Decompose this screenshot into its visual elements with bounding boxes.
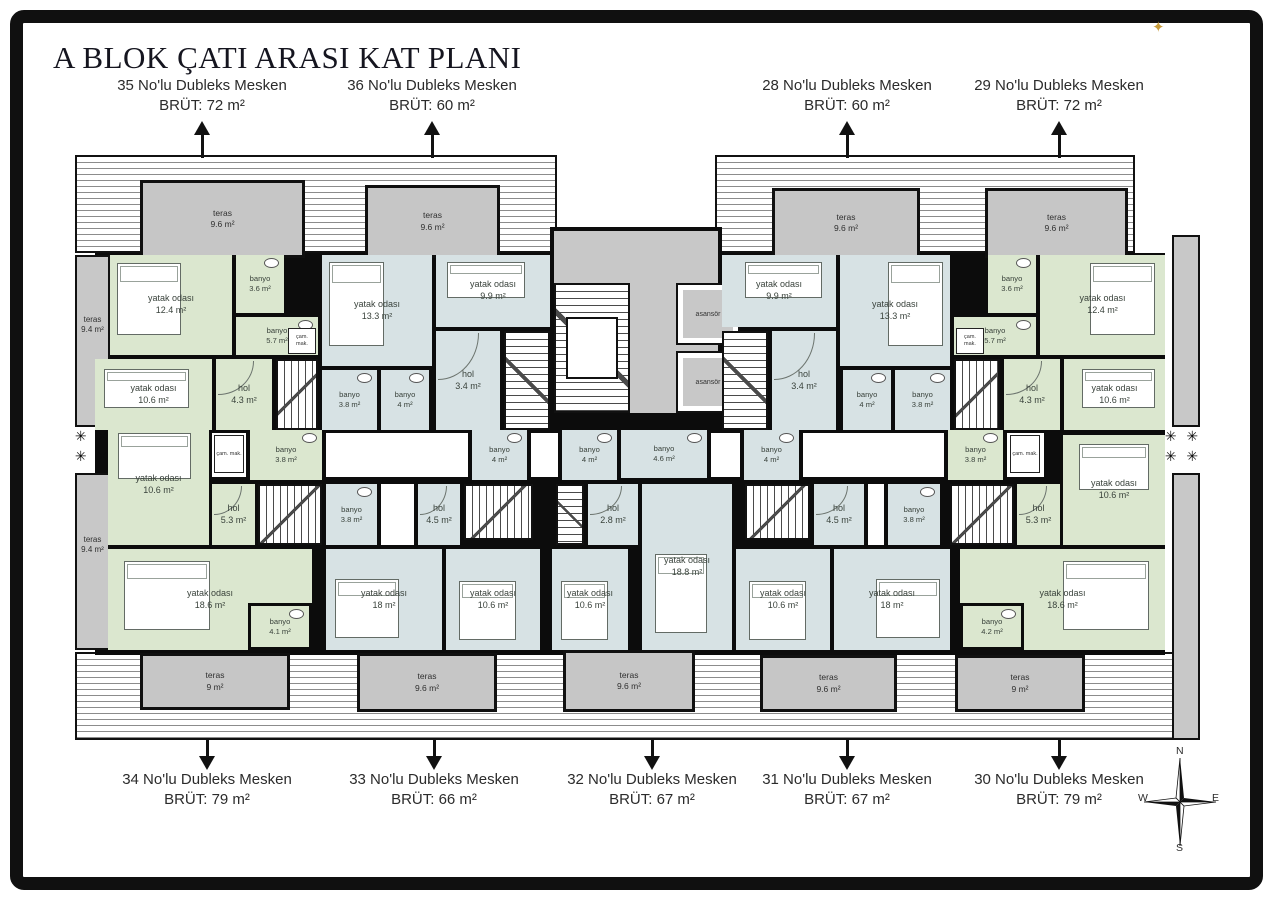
arrow-up-icon xyxy=(839,121,855,135)
room-area: 4 m² xyxy=(582,455,597,465)
unit-callout-36: 36 No'lu Dubleks Mesken BRÜT: 60 m² xyxy=(320,76,544,158)
room-name: yatak odası xyxy=(1079,293,1125,305)
room-area: 3.8 m² xyxy=(275,455,297,465)
terrace: teras9 m² xyxy=(955,655,1085,712)
arrow-down-icon xyxy=(839,756,855,770)
room-area: 13.3 m² xyxy=(880,311,911,323)
room-area: 13.3 m² xyxy=(362,311,393,323)
corridor xyxy=(381,484,414,545)
room-area: 3.4 m² xyxy=(455,381,481,393)
room-name: banyo xyxy=(250,274,271,284)
room-yatak-odasi: yatak odası9.9 m² xyxy=(722,255,836,327)
room-name: banyo xyxy=(1002,274,1023,284)
room-banyo: banyo4.6 m² xyxy=(621,430,707,478)
room-area: 4.6 m² xyxy=(653,454,675,464)
unit-callout-29: 29 No'lu Dubleks Mesken BRÜT: 72 m² xyxy=(947,76,1171,158)
arrow-down-icon xyxy=(426,756,442,770)
room-area: 3.6 m² xyxy=(1001,284,1023,294)
terrace: teras9.6 m² xyxy=(140,180,305,258)
room-area: 3.8 m² xyxy=(965,455,987,465)
arrow-stem xyxy=(846,738,849,756)
room-area: 3.8 m² xyxy=(341,515,363,525)
room-name: hol xyxy=(607,503,619,515)
unit-name: 35 No'lu Dubleks Mesken xyxy=(117,76,287,96)
room-yatak-odasi: yatak odası18 m² xyxy=(834,549,950,650)
room-area: 3.4 m² xyxy=(791,381,817,393)
closet-washer: çam. mak. xyxy=(288,328,316,354)
unit-staircase xyxy=(556,484,584,545)
corridor xyxy=(326,433,468,477)
unit-name: 29 No'lu Dubleks Mesken xyxy=(974,76,1144,96)
terrace-strip-right-upper xyxy=(1172,235,1200,427)
room-name: yatak odası xyxy=(760,588,806,600)
room-yatak-odasi: yatak odası13.3 m² xyxy=(840,255,950,366)
room-yatak-odasi: yatak odası10.6 m² xyxy=(446,549,540,650)
arrow-up-icon xyxy=(194,121,210,135)
room-name: yatak odası xyxy=(1039,588,1085,600)
room-banyo: banyo3.8 m² xyxy=(895,370,950,430)
room-name: banyo xyxy=(489,445,510,455)
unit-brut: BRÜT: 60 m² xyxy=(804,96,890,116)
room-area: 4.1 m² xyxy=(269,627,291,637)
room-name: yatak odası xyxy=(872,299,918,311)
unit-staircase xyxy=(950,484,1014,545)
floor-plan-page: { "title": "A BLOK ÇATI ARASI KAT PLANI"… xyxy=(0,0,1273,900)
room-yatak-odasi: yatak odası13.3 m² xyxy=(322,255,432,366)
room-banyo: banyo4 m² xyxy=(472,430,527,480)
unit-callout-31: 31 No'lu Dubleks Mesken BRÜT: 67 m² xyxy=(735,738,959,810)
terrace: teras9 m² xyxy=(140,653,290,710)
room-name: yatak odası xyxy=(470,588,516,600)
corridor xyxy=(531,433,558,477)
room-name: hol xyxy=(462,369,474,381)
room-area: 12.4 m² xyxy=(1087,305,1118,317)
room-area: 4.5 m² xyxy=(826,515,852,527)
room-yatak-odasi: yatak odası10.6 m² xyxy=(95,359,212,430)
room-area: 10.6 m² xyxy=(1099,490,1130,502)
room-area: 18.6 m² xyxy=(1047,600,1078,612)
room-yatak-odasi: yatak odası18.8 m² xyxy=(642,484,732,650)
room-area: 5.3 m² xyxy=(1026,515,1052,527)
unit-brut: BRÜT: 79 m² xyxy=(1016,790,1102,810)
unit-brut: BRÜT: 72 m² xyxy=(1016,96,1102,116)
room-name: hol xyxy=(227,503,239,515)
room-banyo: banyo4.2 m² xyxy=(960,603,1024,650)
unit-name: 30 No'lu Dubleks Mesken xyxy=(974,770,1144,790)
room-name: yatak odası xyxy=(869,588,915,600)
unit-name: 33 No'lu Dubleks Mesken xyxy=(349,770,519,790)
room-name: hol xyxy=(798,369,810,381)
room-yatak-odasi: yatak odası10.6 m² xyxy=(1063,435,1165,545)
decor-star-icon: ✦ xyxy=(1152,18,1165,36)
room-yatak-odasi: yatak odası10.6 m² xyxy=(736,549,830,650)
unit-staircase xyxy=(722,331,768,430)
room-hol: hol5.3 m² xyxy=(212,484,255,545)
unit-callout-34: 34 No'lu Dubleks Mesken BRÜT: 79 m² xyxy=(95,738,319,810)
room-area: 5.3 m² xyxy=(221,515,247,527)
unit-brut: BRÜT: 67 m² xyxy=(804,790,890,810)
terrace-strip-left-lower: teras9.4 m² xyxy=(75,473,110,650)
room-name: banyo xyxy=(579,445,600,455)
terrace: teras9.6 m² xyxy=(357,653,497,712)
room-banyo: banyo3.8 m² xyxy=(888,484,940,545)
terrace-label: teras9.4 m² xyxy=(77,315,108,336)
room-area: 12.4 m² xyxy=(156,305,187,317)
unit-brut: BRÜT: 66 m² xyxy=(391,790,477,810)
room-banyo: banyo3.8 m² xyxy=(250,430,322,480)
room-area: 4.5 m² xyxy=(426,515,452,527)
room-banyo: banyo3.8 m² xyxy=(326,484,377,545)
room-yatak-odasi: yatak odası10.6 m² xyxy=(1064,359,1165,430)
room-hol: hol3.4 m² xyxy=(436,331,500,430)
room-area: 18.6 m² xyxy=(195,600,226,612)
room-area: 10.6 m² xyxy=(1099,395,1130,407)
corridor xyxy=(868,484,884,545)
room-name: banyo xyxy=(270,617,291,627)
room-yatak-odasi: yatak odası9.9 m² xyxy=(436,255,550,327)
room-area: 4 m² xyxy=(859,400,874,410)
arrow-up-icon xyxy=(424,121,440,135)
room-name: banyo xyxy=(339,390,360,400)
unit-name: 31 No'lu Dubleks Mesken xyxy=(762,770,932,790)
room-area: 5.7 m² xyxy=(984,336,1006,346)
terrace: teras9.6 m² xyxy=(365,185,500,258)
arrow-stem xyxy=(651,738,654,756)
room-area: 4.2 m² xyxy=(981,627,1003,637)
room-area: 5.7 m² xyxy=(266,336,288,346)
room-name: yatak odası xyxy=(361,588,407,600)
unit-callout-35: 35 No'lu Dubleks Mesken BRÜT: 72 m² xyxy=(90,76,314,158)
room-name: yatak odası xyxy=(130,383,176,395)
room-yatak-odasi: yatak odası10.6 m² xyxy=(552,549,628,650)
room-area: 10.6 m² xyxy=(478,600,509,612)
room-name: yatak odası xyxy=(1091,478,1137,490)
room-banyo: banyo4 m² xyxy=(744,430,799,480)
room-hol: hol4.3 m² xyxy=(216,359,272,430)
room-hol: hol3.4 m² xyxy=(772,331,836,430)
room-yatak-odasi: yatak odası12.4 m² xyxy=(1040,255,1165,355)
room-yatak-odasi: yatak odası12.4 m² xyxy=(110,255,232,355)
room-yatak-odasi: yatak odası18 m² xyxy=(326,549,442,650)
room-banyo: banyo3.8 m² xyxy=(322,370,377,430)
corridor xyxy=(803,433,944,477)
unit-callout-33: 33 No'lu Dubleks Mesken BRÜT: 66 m² xyxy=(322,738,546,810)
room-banyo: banyo4 m² xyxy=(381,370,429,430)
room-area: 18 m² xyxy=(880,600,903,612)
room-area: 18.8 m² xyxy=(672,567,703,579)
room-hol: hol4.5 m² xyxy=(814,484,864,545)
room-name: hol xyxy=(833,503,845,515)
room-area: 4.3 m² xyxy=(231,395,257,407)
room-name: hol xyxy=(1032,503,1044,515)
bed-icon xyxy=(118,433,191,479)
room-area: 3.8 m² xyxy=(912,400,934,410)
room-area: 4 m² xyxy=(397,400,412,410)
arrow-up-icon xyxy=(1051,121,1067,135)
room-area: 10.6 m² xyxy=(138,395,169,407)
room-name: banyo xyxy=(912,390,933,400)
room-name: yatak odası xyxy=(187,588,233,600)
room-area: 3.8 m² xyxy=(903,515,925,525)
room-name: yatak odası xyxy=(148,293,194,305)
floor-plan-drawing: teras9.4 m² teras9.4 m² ✳ ✳ ✳ ✳ ✳ ✳ ✳ ✳ … xyxy=(72,155,1204,745)
room-area: 18 m² xyxy=(372,600,395,612)
room-area: 4 m² xyxy=(764,455,779,465)
unit-staircase xyxy=(464,484,533,540)
unit-callout-28: 28 No'lu Dubleks Mesken BRÜT: 60 m² xyxy=(735,76,959,158)
room-name: hol xyxy=(433,503,445,515)
unit-brut: BRÜT: 79 m² xyxy=(164,790,250,810)
plant-icons: ✳ ✳ ✳ ✳ xyxy=(1160,427,1206,466)
unit-staircase xyxy=(258,484,322,545)
room-name: yatak odası xyxy=(756,279,802,291)
room-name: banyo xyxy=(982,617,1003,627)
closet-washer: çam. mak. xyxy=(1010,435,1040,473)
room-area: 10.6 m² xyxy=(575,600,606,612)
terrace-strip-right-lower xyxy=(1172,473,1200,740)
unit-staircase xyxy=(504,331,550,430)
room-area: 9.9 m² xyxy=(480,291,506,303)
unit-name: 36 No'lu Dubleks Mesken xyxy=(347,76,517,96)
room-banyo: banyo3.8 m² xyxy=(948,430,1003,480)
room-area: 3.8 m² xyxy=(339,400,361,410)
room-name: banyo xyxy=(395,390,416,400)
room-name: banyo xyxy=(276,445,297,455)
compass-rose: N E S W xyxy=(1140,748,1220,860)
room-name: banyo xyxy=(654,444,675,454)
room-yatak-odasi: yatak odası10.6 m² xyxy=(108,425,209,545)
room-name: banyo xyxy=(965,445,986,455)
room-name: banyo xyxy=(341,505,362,515)
arrow-down-icon xyxy=(199,756,215,770)
page-title: A BLOK ÇATI ARASI KAT PLANI xyxy=(53,40,522,76)
terrace-label: teras9.4 m² xyxy=(77,535,108,556)
room-banyo: banyo4.1 m² xyxy=(248,603,312,650)
room-hol: hol2.8 m² xyxy=(588,484,638,545)
room-name: banyo xyxy=(904,505,925,515)
room-hol: hol5.3 m² xyxy=(1017,484,1060,545)
room-name: banyo xyxy=(267,326,288,336)
room-area: 3.6 m² xyxy=(249,284,271,294)
closet-washer: çam. mak. xyxy=(214,435,244,473)
terrace: teras9.6 m² xyxy=(772,188,920,258)
compass-rose-icon xyxy=(1140,750,1220,854)
terrace: teras9.6 m² xyxy=(760,655,897,712)
room-name: yatak odası xyxy=(354,299,400,311)
room-area: 9.9 m² xyxy=(766,291,792,303)
room-name: banyo xyxy=(857,390,878,400)
arrow-stem xyxy=(206,738,209,756)
room-banyo: banyo3.6 m² xyxy=(988,255,1036,313)
room-area: 4.3 m² xyxy=(1019,395,1045,407)
unit-staircase xyxy=(276,359,318,430)
room-name: hol xyxy=(238,383,250,395)
room-name: hol xyxy=(1026,383,1038,395)
room-area: 10.6 m² xyxy=(768,600,799,612)
arrow-stem xyxy=(431,135,434,158)
closet-washer: çam. mak. xyxy=(956,328,984,354)
unit-callout-32: 32 No'lu Dubleks Mesken BRÜT: 67 m² xyxy=(540,738,764,810)
terrace: teras9.6 m² xyxy=(985,188,1128,258)
unit-name: 34 No'lu Dubleks Mesken xyxy=(122,770,292,790)
unit-staircase xyxy=(745,484,810,540)
plant-icons: ✳ ✳ ✳ ✳ xyxy=(72,427,114,466)
terrace: teras9.6 m² xyxy=(563,650,695,712)
unit-staircase xyxy=(954,359,1000,430)
room-name: yatak odası xyxy=(135,473,181,485)
room-banyo: banyo3.6 m² xyxy=(236,255,284,313)
arrow-stem xyxy=(1058,135,1061,158)
room-area: 2.8 m² xyxy=(600,515,626,527)
arrow-stem xyxy=(433,738,436,756)
unit-brut: BRÜT: 72 m² xyxy=(159,96,245,116)
unit-name: 28 No'lu Dubleks Mesken xyxy=(762,76,932,96)
room-name: yatak odası xyxy=(664,555,710,567)
arrow-stem xyxy=(1058,738,1061,756)
room-name: yatak odası xyxy=(567,588,613,600)
unit-brut: BRÜT: 60 m² xyxy=(389,96,475,116)
room-name: yatak odası xyxy=(1091,383,1137,395)
arrow-stem xyxy=(201,135,204,158)
arrow-stem xyxy=(846,135,849,158)
room-area: 4 m² xyxy=(492,455,507,465)
room-banyo: banyo4 m² xyxy=(843,370,891,430)
unit-name: 32 No'lu Dubleks Mesken xyxy=(567,770,737,790)
room-name: yatak odası xyxy=(470,279,516,291)
room-banyo: banyo4 m² xyxy=(562,430,617,480)
room-area: 10.6 m² xyxy=(143,485,174,497)
room-name: banyo xyxy=(761,445,782,455)
room-hol: hol4.5 m² xyxy=(418,484,460,545)
arrow-down-icon xyxy=(644,756,660,770)
unit-brut: BRÜT: 67 m² xyxy=(609,790,695,810)
corridor xyxy=(711,433,740,477)
arrow-down-icon xyxy=(1051,756,1067,770)
stair-landing xyxy=(566,317,618,379)
room-name: banyo xyxy=(985,326,1006,336)
room-hol: hol4.3 m² xyxy=(1004,359,1060,430)
